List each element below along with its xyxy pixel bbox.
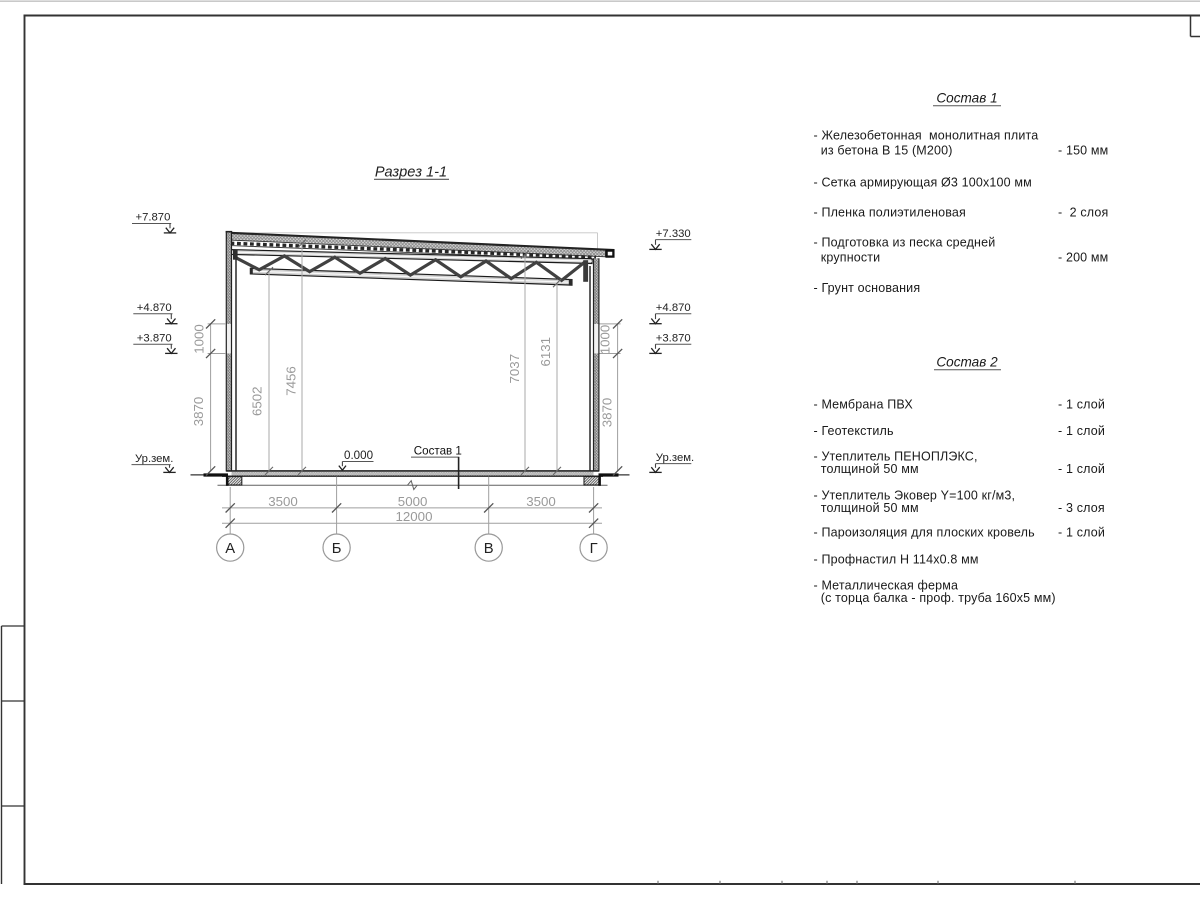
svg-text:из бетона В 15 (М200): из бетона В 15 (М200) <box>814 144 953 158</box>
svg-text:6131: 6131 <box>538 337 553 367</box>
svg-text:Б: Б <box>332 541 342 557</box>
svg-text:+7.330: +7.330 <box>656 228 691 240</box>
svg-text:А: А <box>225 541 235 557</box>
svg-text:- 2 слоя: - 2 слоя <box>1058 206 1108 220</box>
svg-text:- Пленка полиэтиленовая: - Пленка полиэтиленовая <box>814 206 966 220</box>
svg-text:5000: 5000 <box>398 494 428 509</box>
svg-text:1000: 1000 <box>598 325 613 355</box>
svg-text:Разрез 1-1: Разрез 1-1 <box>375 165 447 181</box>
svg-text:- 1 слой: - 1 слой <box>1058 398 1105 412</box>
svg-text:3870: 3870 <box>600 398 615 428</box>
svg-text:(с торца балка - проф. труба 1: (с торца балка - проф. труба 160х5 мм) <box>814 591 1056 605</box>
svg-text:- 150 мм: - 150 мм <box>1058 144 1108 158</box>
svg-text:0.000: 0.000 <box>344 449 373 462</box>
svg-text:+7.870: +7.870 <box>136 212 171 224</box>
svg-text:- Подготовка из песка средней: - Подготовка из песка средней <box>814 236 996 250</box>
svg-text:6502: 6502 <box>250 386 265 416</box>
svg-text:Состав 2: Состав 2 <box>936 355 998 370</box>
svg-text:толщиной 50 мм: толщиной 50 мм <box>814 462 919 476</box>
svg-text:Ур.зем.: Ур.зем. <box>656 452 694 464</box>
svg-text:- 200 мм: - 200 мм <box>1058 251 1108 265</box>
svg-text:7456: 7456 <box>283 366 298 396</box>
svg-text:+4.870: +4.870 <box>137 302 172 314</box>
svg-text:+3.870: +3.870 <box>137 332 172 344</box>
svg-text:- Пароизоляция для плоских кро: - Пароизоляция для плоских кровель <box>814 526 1035 540</box>
svg-text:- 1 слой: - 1 слой <box>1058 424 1105 438</box>
svg-text:- Профнастил Н 114х0.8 мм: - Профнастил Н 114х0.8 мм <box>814 553 979 567</box>
svg-text:- Мембрана ПВХ: - Мембрана ПВХ <box>814 398 914 412</box>
svg-text:В: В <box>484 541 494 557</box>
svg-text:+4.870: +4.870 <box>656 302 691 314</box>
svg-text:Состав 1: Состав 1 <box>414 444 462 457</box>
svg-text:1000: 1000 <box>191 324 206 354</box>
svg-text:3870: 3870 <box>191 397 206 427</box>
svg-text:- Грунт основания: - Грунт основания <box>814 281 921 295</box>
svg-text:крупности: крупности <box>814 251 881 265</box>
svg-text:- Геотекстиль: - Геотекстиль <box>814 424 894 438</box>
svg-text:7037: 7037 <box>507 354 522 384</box>
svg-text:3500: 3500 <box>526 494 556 509</box>
svg-text:- Железобетонная монолитная п: - Железобетонная монолитная плита <box>814 129 1039 143</box>
svg-text:- 3 слоя: - 3 слоя <box>1058 501 1105 515</box>
svg-text:толщиной 50 мм: толщиной 50 мм <box>814 501 919 515</box>
svg-text:Г: Г <box>590 541 598 557</box>
svg-text:- Сетка армирующая Ø3 100х100: - Сетка армирующая Ø3 100х100 мм <box>814 176 1032 190</box>
svg-text:+3.870: +3.870 <box>656 332 691 344</box>
svg-text:- 1 слой: - 1 слой <box>1058 462 1105 476</box>
svg-text:3500: 3500 <box>268 494 298 509</box>
svg-text:12000: 12000 <box>396 509 433 524</box>
svg-text:Состав 1: Состав 1 <box>936 91 997 106</box>
svg-text:Ур.зем.: Ур.зем. <box>135 453 173 465</box>
svg-text:- 1 слой: - 1 слой <box>1058 526 1105 540</box>
